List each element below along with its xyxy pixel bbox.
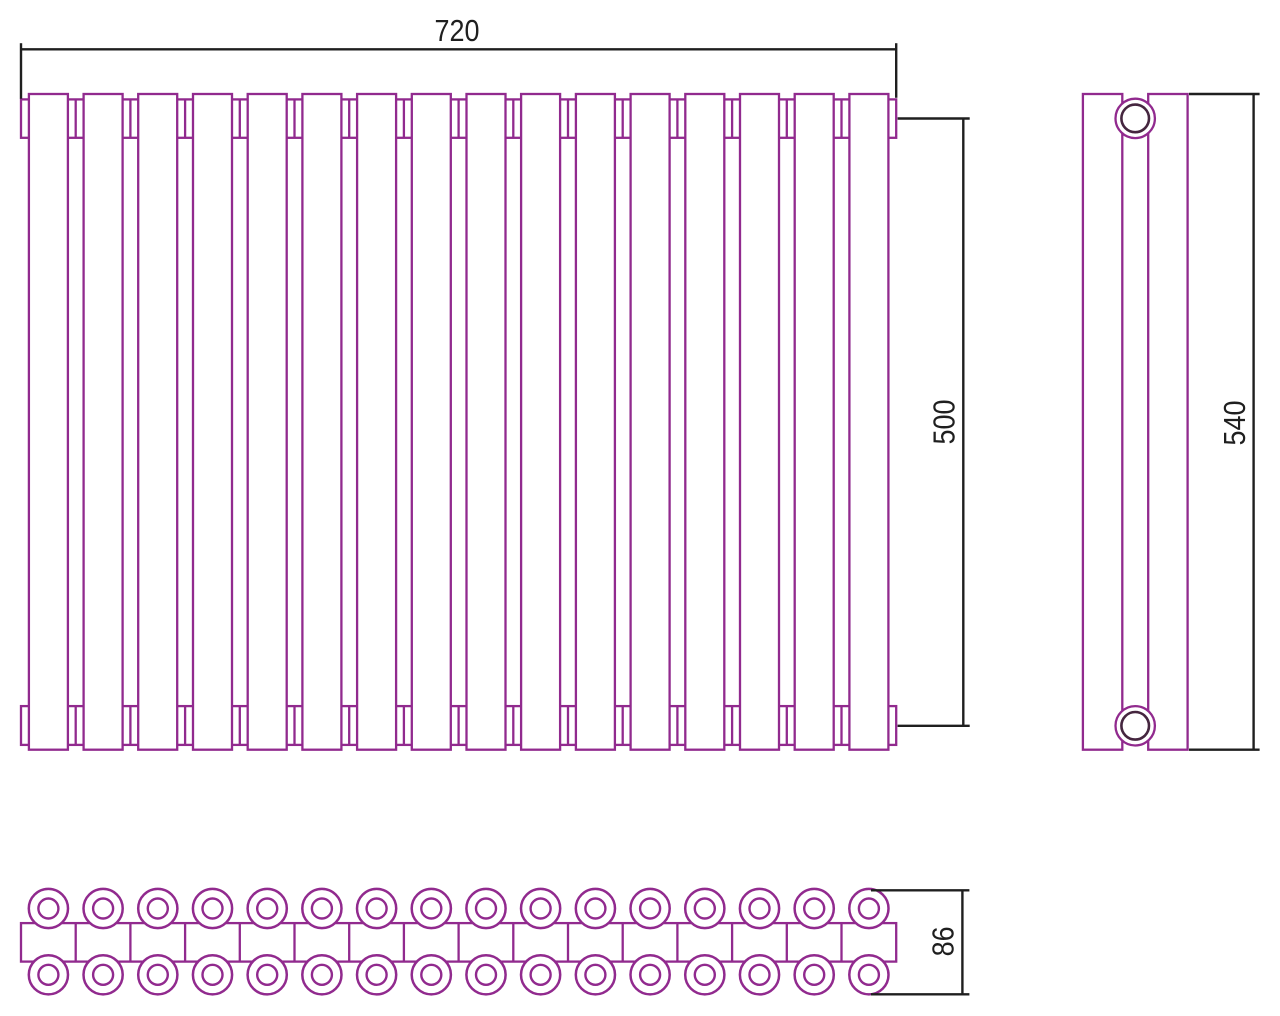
svg-text:720: 720 [435,14,480,48]
svg-text:540: 540 [1218,401,1252,446]
svg-text:86: 86 [927,926,961,956]
svg-text:500: 500 [928,400,962,445]
